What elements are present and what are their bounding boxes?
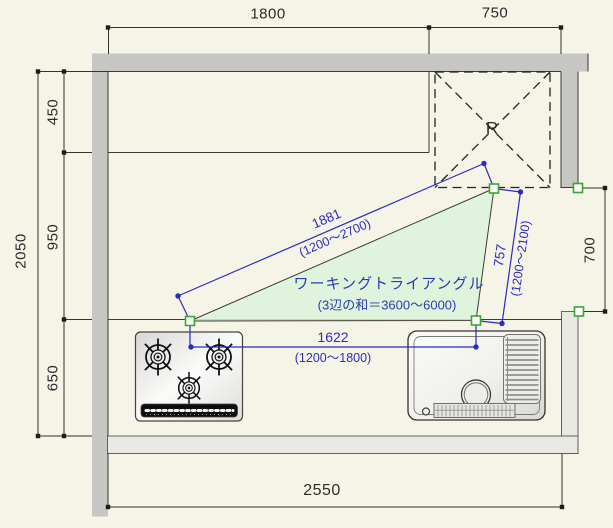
dim-upper-counter-depth: 450: [46, 99, 61, 126]
sink-front-grate: [434, 404, 515, 418]
dim-middle-clearance: 950: [46, 224, 61, 251]
triangle-side-sink-stove-range: (1200〜1800): [295, 352, 371, 365]
triangle-side-sink-stove-length: 1622: [317, 330, 348, 344]
dim-top-counter-width: 1800: [250, 7, 285, 22]
dim-bottom-interior-width: 2550: [303, 483, 341, 499]
dim-lower-counter-depth: 650: [46, 365, 61, 392]
working-triangle-subtitle: (3辺の和＝3600〜6000): [318, 299, 457, 312]
refrigerator-label: R: [486, 120, 498, 137]
faucet-hole: [423, 408, 430, 415]
dim-right-opening-width: 700: [583, 237, 598, 264]
dim-refrigerator-width: 750: [482, 6, 509, 21]
triangle-side-fridge-sink-length: 757: [492, 243, 509, 267]
sink-drain-rack: [504, 335, 541, 404]
dim-left-total: 2050: [14, 233, 29, 268]
kitchen-floor-plan: 1800 750 2050 450 950 650 700 2550 R 188…: [0, 0, 613, 528]
working-triangle-title: ワーキングトライアングル: [294, 277, 485, 292]
